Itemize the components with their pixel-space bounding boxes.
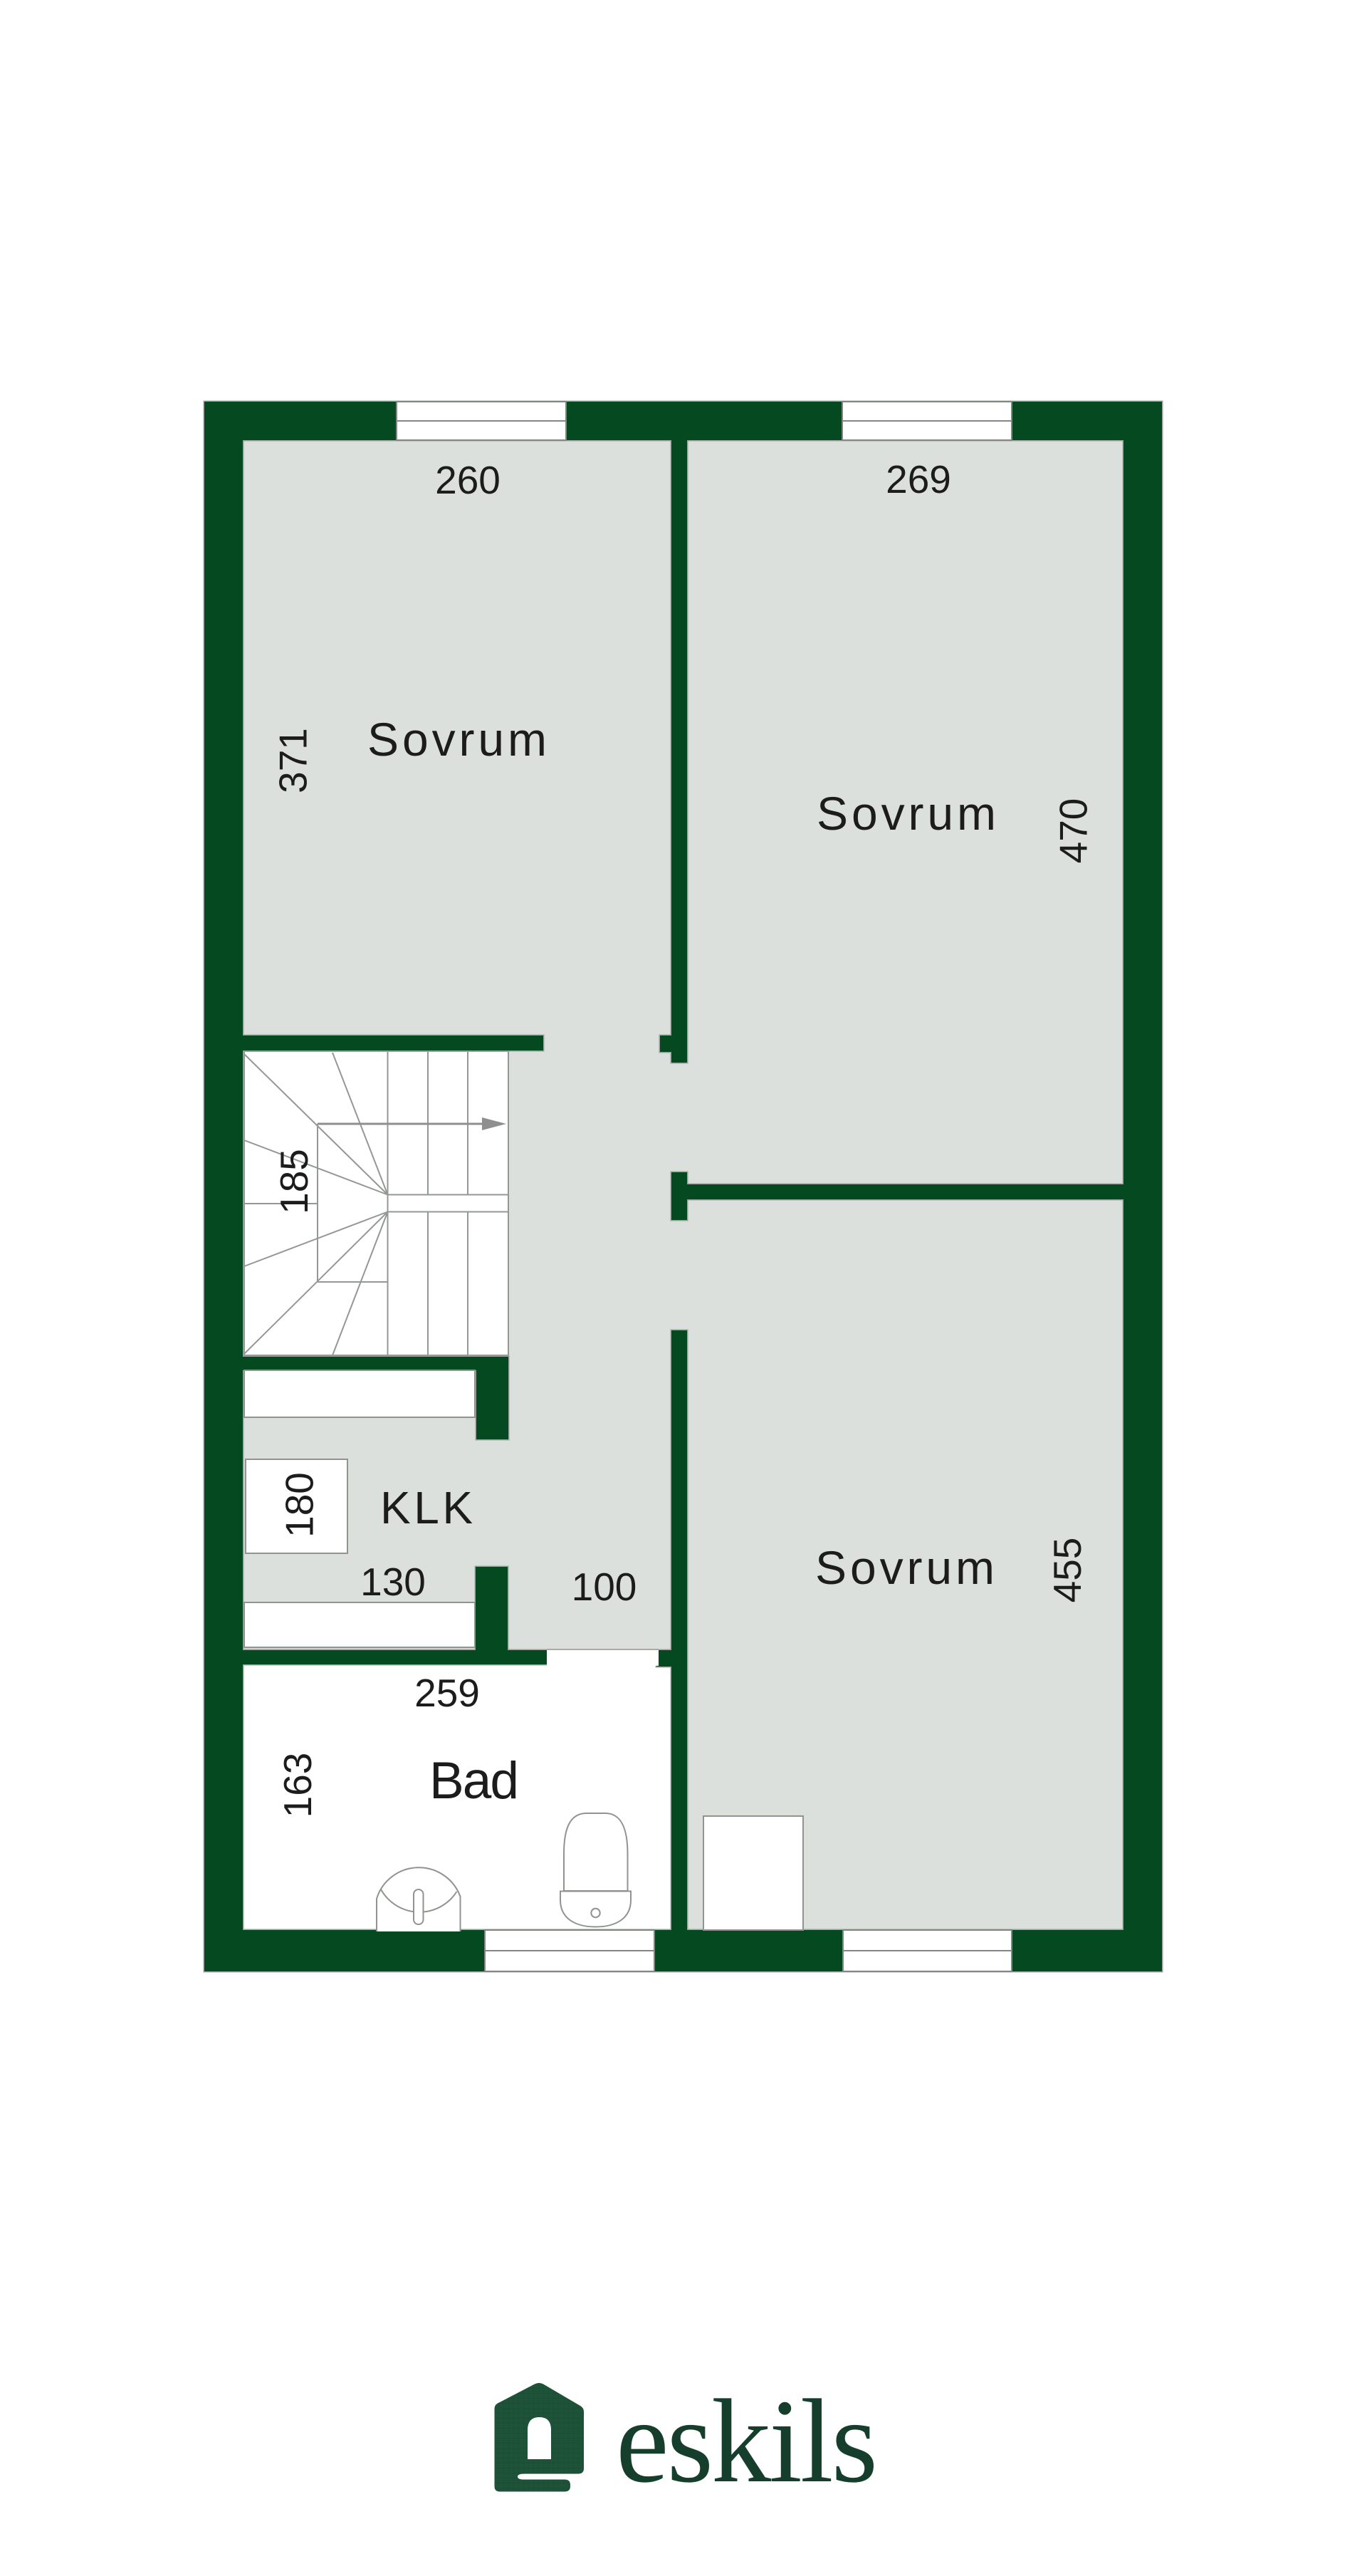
svg-text:eskils: eskils bbox=[616, 2375, 878, 2508]
svg-text:Bad: Bad bbox=[429, 1752, 519, 1810]
svg-text:163: 163 bbox=[276, 1753, 320, 1818]
svg-text:100: 100 bbox=[572, 1565, 637, 1609]
svg-text:455: 455 bbox=[1045, 1538, 1089, 1603]
svg-text:180: 180 bbox=[278, 1472, 322, 1538]
svg-text:470: 470 bbox=[1052, 798, 1096, 864]
svg-text:KLK: KLK bbox=[380, 1482, 473, 1533]
svg-text:269: 269 bbox=[886, 457, 951, 501]
svg-text:130: 130 bbox=[360, 1560, 426, 1604]
svg-text:371: 371 bbox=[271, 728, 315, 793]
svg-text:260: 260 bbox=[435, 458, 501, 502]
svg-text:185: 185 bbox=[272, 1149, 316, 1214]
svg-text:259: 259 bbox=[414, 1671, 480, 1715]
